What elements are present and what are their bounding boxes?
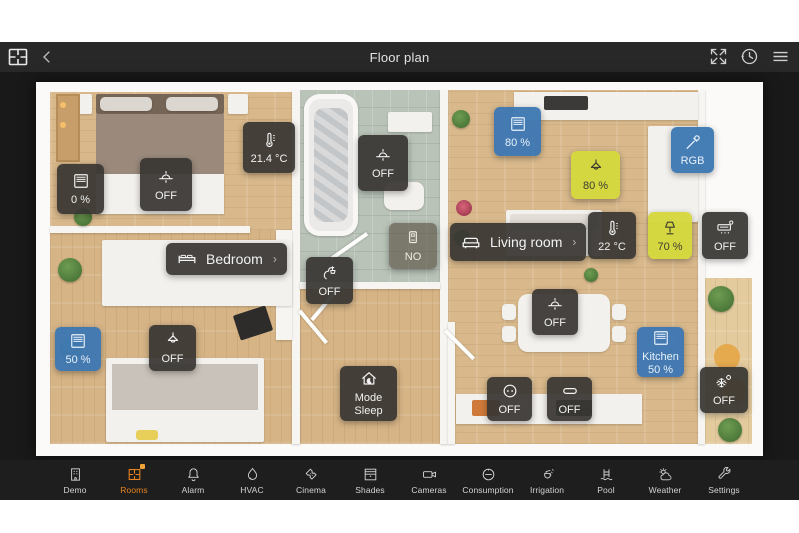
blinds-icon	[71, 171, 91, 191]
blinds-icon	[651, 328, 671, 348]
nav-item-cinema[interactable]: Cinema	[288, 466, 334, 495]
plant	[452, 110, 470, 128]
widget-value: OFF	[162, 354, 184, 366]
widget-value: OFF	[319, 287, 341, 299]
widget-value: 70 %	[657, 242, 682, 254]
widget-value: 80 %	[583, 181, 608, 193]
widget-table-lamp[interactable]: 70 %	[648, 212, 692, 259]
widget-office-blinds[interactable]: 50 %	[55, 327, 101, 371]
widget-door-sensor[interactable]: NO	[389, 223, 437, 269]
blinds-icon	[68, 331, 88, 351]
bottom-nav-bar: Demo Rooms Alarm HVAC Cinema Shades	[0, 460, 799, 500]
widget-bedroom-temperature[interactable]: 21.4 °C	[243, 122, 295, 173]
nav-item-alarm[interactable]: Alarm	[170, 466, 216, 495]
chair	[612, 304, 626, 320]
top-bar: Floor plan	[0, 42, 799, 72]
widget-value: OFF	[499, 405, 521, 417]
nav-item-consumption[interactable]: Consumption	[465, 466, 511, 495]
table-lamp-icon	[660, 218, 680, 238]
widget-label: Kitchen	[642, 352, 679, 364]
pillow	[100, 97, 152, 111]
widget-rgb-light[interactable]: RGB	[671, 127, 714, 173]
socket-icon	[500, 381, 520, 401]
widget-value: 0 %	[71, 195, 90, 207]
plant	[584, 268, 598, 282]
nav-item-demo[interactable]: Demo	[52, 466, 98, 495]
widget-value: OFF	[155, 191, 177, 203]
widget-switch[interactable]: OFF	[547, 377, 592, 421]
meter-icon	[480, 466, 497, 483]
sun-cloud-icon	[657, 466, 674, 483]
widget-value: NO	[405, 252, 422, 264]
nightstand	[228, 94, 248, 114]
widget-bedroom-blinds[interactable]: 0 %	[57, 164, 104, 214]
sprinkler-icon	[539, 466, 556, 483]
nav-item-hvac[interactable]: HVAC	[229, 466, 275, 495]
building-icon	[67, 466, 84, 483]
page-title: Floor plan	[0, 50, 799, 65]
switch-icon	[560, 381, 580, 401]
widget-water-valve[interactable]: OFF	[306, 257, 353, 304]
room-label-living-room[interactable]: Living room ›	[450, 223, 586, 261]
nav-item-irrigation[interactable]: Irrigation	[524, 466, 570, 495]
nav-item-rooms[interactable]: Rooms	[111, 466, 157, 495]
room-name: Bedroom	[206, 251, 263, 267]
flame-icon	[244, 466, 261, 483]
widget-value: OFF	[544, 318, 566, 330]
rooms-badge	[140, 464, 145, 469]
pendant-light-icon	[163, 330, 183, 350]
hamburger-menu-icon[interactable]	[770, 46, 791, 67]
widget-value: OFF	[372, 169, 394, 181]
terrace-plant	[718, 418, 742, 442]
faucet-icon	[320, 263, 340, 283]
wardrobe-light	[60, 122, 66, 128]
flowers	[456, 200, 472, 216]
nav-item-pool[interactable]: Pool	[583, 466, 629, 495]
snowflake-gear-icon	[714, 372, 734, 392]
widget-bedroom-ceiling-light[interactable]: OFF	[140, 158, 192, 211]
widget-value: OFF	[714, 242, 736, 254]
widget-value: 22 °C	[598, 242, 626, 254]
nav-item-shades[interactable]: Shades	[347, 466, 393, 495]
widget-livingroom-temperature[interactable]: 22 °C	[588, 212, 636, 259]
wall	[440, 90, 448, 444]
shades-icon	[362, 466, 379, 483]
widget-value: Sleep	[354, 406, 382, 418]
bathroom-sink	[388, 112, 432, 132]
widget-bathroom-ceiling-light[interactable]: OFF	[358, 135, 408, 191]
bathtub-marble	[314, 108, 348, 222]
chevron-right-icon: ›	[572, 235, 576, 249]
widget-value: 50 %	[648, 365, 673, 377]
chair	[502, 304, 516, 320]
pendant-light-icon	[586, 157, 606, 177]
door-sensor-icon	[403, 228, 423, 248]
sofa-icon	[460, 231, 482, 253]
pool-ladder-icon	[598, 466, 615, 483]
widget-kitchen-blinds[interactable]: Kitchen 50 %	[637, 327, 684, 377]
room-name: Living room	[490, 234, 562, 250]
camera-icon	[421, 466, 438, 483]
chair	[612, 326, 626, 342]
wrench-icon	[716, 466, 733, 483]
thermometer-icon	[602, 218, 622, 238]
house-moon-icon	[359, 369, 379, 389]
nav-item-weather[interactable]: Weather	[642, 466, 688, 495]
widget-value: 80 %	[505, 138, 530, 150]
terrace-plant	[708, 286, 734, 312]
room-label-bedroom[interactable]: Bedroom ›	[166, 243, 287, 275]
widget-dining-ceiling-light[interactable]: OFF	[532, 289, 578, 335]
expand-icon[interactable]	[708, 46, 729, 67]
bell-icon	[185, 466, 202, 483]
ceiling-light-icon	[545, 294, 565, 314]
widget-office-pendant-light[interactable]: OFF	[149, 325, 196, 371]
thermometer-icon	[259, 130, 279, 150]
chevron-right-icon: ›	[273, 252, 277, 266]
ceiling-light-icon	[373, 145, 393, 165]
chair	[502, 326, 516, 342]
bed-icon	[176, 248, 198, 270]
app-window: Floor plan	[0, 0, 799, 533]
blinds-icon	[508, 114, 528, 134]
content-area: 0 % OFF 21.4 °C OFF 80 % 80 % RGB NO	[0, 72, 799, 460]
cooktop	[544, 96, 588, 110]
yellow-pillow	[136, 430, 158, 440]
widget-house-mode[interactable]: Mode Sleep	[340, 366, 397, 421]
ceiling-light-icon	[156, 167, 176, 187]
ticket-icon	[303, 466, 320, 483]
widget-label: Mode	[355, 393, 383, 405]
plant	[58, 258, 82, 282]
wardrobe-light	[60, 102, 66, 108]
wall	[50, 226, 250, 233]
ac-unit-icon	[715, 218, 735, 238]
pipette-icon	[683, 132, 703, 152]
widget-value: 21.4 °C	[251, 154, 288, 166]
widget-value: RGB	[681, 156, 705, 168]
nav-item-cameras[interactable]: Cameras	[406, 466, 452, 495]
widget-value: 50 %	[65, 355, 90, 367]
nav-item-settings[interactable]: Settings	[701, 466, 747, 495]
widget-value: OFF	[713, 396, 735, 408]
widget-ac[interactable]: OFF	[702, 212, 748, 259]
kitchen-counter-top	[514, 92, 698, 120]
widget-cooling[interactable]: OFF	[700, 367, 748, 413]
widget-value: OFF	[559, 405, 581, 417]
history-clock-icon[interactable]	[739, 46, 760, 67]
widget-socket[interactable]: OFF	[487, 377, 532, 421]
widget-livingroom-blinds[interactable]: 80 %	[494, 107, 541, 156]
pillow	[166, 97, 218, 111]
widget-kitchen-pendant-light[interactable]: 80 %	[571, 151, 620, 199]
